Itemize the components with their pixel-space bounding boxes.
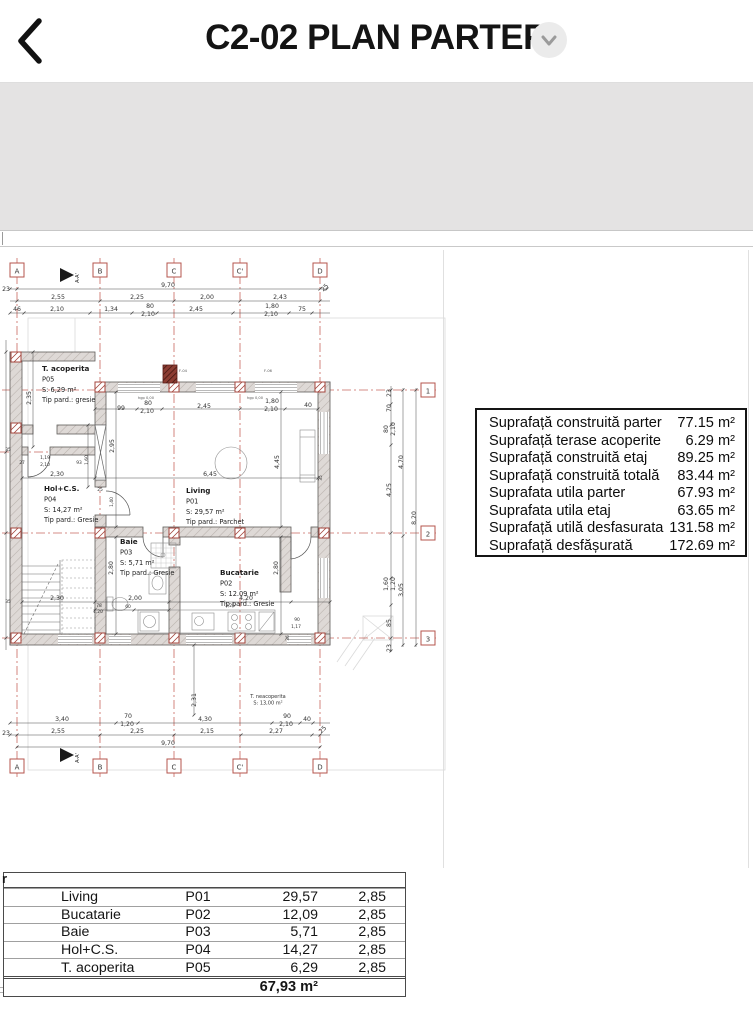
dim-label: 2,30	[50, 471, 64, 478]
room-name: Baie	[120, 537, 138, 546]
dim-label: 2,10	[279, 721, 293, 728]
dim-label: 3,40	[55, 716, 69, 723]
dim-label: hgp 0,00	[247, 396, 264, 400]
room-name: T. neacoperita	[249, 694, 285, 700]
dim-label: 4,45	[274, 455, 281, 469]
room-code-cell: P03	[154, 924, 242, 940]
room-area-cell: 14,27	[242, 942, 324, 958]
room-area-cell: 29,57	[242, 889, 324, 905]
room-area-cell: 12,09	[242, 907, 324, 923]
room-code-cell: P05	[154, 960, 242, 976]
room-name-cell: Baie	[4, 924, 154, 940]
room-area-cell: 6,29	[242, 960, 324, 976]
dim-label: 2,80	[273, 561, 280, 575]
room-height-cell: 2,85	[324, 960, 402, 976]
room-floor: Tip pard.: Gresie	[219, 600, 274, 608]
dim-label: 2,25	[130, 728, 144, 735]
dim-label: 80	[383, 425, 390, 433]
dim-label: 2,10	[40, 462, 50, 468]
dim-label: 2,45	[189, 306, 203, 313]
dim-label: 23	[2, 286, 10, 293]
dim-label: 78	[96, 603, 102, 609]
room-area: S: 12.09 m²	[220, 590, 259, 598]
room-name-cell: Living	[4, 889, 154, 905]
dim-label: 1,20	[120, 721, 134, 728]
dim-label: 23	[386, 389, 393, 397]
chevron-down-icon	[537, 28, 561, 52]
sheet-top-edge	[0, 231, 753, 247]
dim-label: 1,20	[390, 577, 397, 591]
dim-label: 2,30	[50, 595, 64, 602]
area-value: 83.44 m²	[677, 468, 735, 486]
dim-label: 90	[294, 617, 300, 623]
area-label: Suprafață utilă desfasurata	[489, 520, 663, 538]
title-dropdown-button[interactable]	[531, 22, 567, 58]
area-label: Suprafata utila parter	[489, 485, 625, 503]
area-value: 63.65 m²	[677, 503, 735, 521]
area-row: Suprafață construită parter77.15 m²	[489, 415, 735, 433]
area-label: Suprafață desfășurată	[489, 538, 633, 556]
room-name: Hol+C.S.	[44, 484, 79, 493]
dim-label: 85	[386, 619, 393, 627]
grid-label: 1	[426, 388, 430, 396]
room-name-cell: T. acoperita	[4, 960, 154, 976]
grid-label: D	[317, 764, 322, 772]
room-floor: Tip pard.: Gresie	[43, 516, 98, 524]
area-row: Suprafață terase acoperite6.29 m²	[489, 433, 735, 451]
room-table-header: r	[4, 873, 405, 888]
dim-label: 4,30	[198, 716, 212, 723]
dim-label: 1,40	[109, 497, 115, 507]
dim-label: 80	[144, 400, 152, 407]
dim-label: 35	[5, 599, 11, 605]
area-row: Suprafață desfășurată172.69 m²	[489, 538, 735, 556]
table-row: Bucatarie P02 12,09 2,85	[4, 906, 405, 924]
dim-label: 2,55	[51, 294, 65, 301]
dim-label: 1,80	[265, 398, 279, 405]
room-floor: Tip pard.: gresie	[41, 396, 96, 404]
dim-label: 35	[5, 447, 11, 453]
area-row: Suprafata utila etaj63.65 m²	[489, 503, 735, 521]
area-row: Suprafață construită etaj89.25 m²	[489, 450, 735, 468]
grid-label: 2	[426, 531, 430, 539]
area-row: Suprafață construită totală83.44 m²	[489, 468, 735, 486]
dim-label: 1,17	[291, 624, 301, 630]
dim-label: 25	[318, 725, 329, 736]
room-code-cell: P04	[154, 942, 242, 958]
dim-label: 3,05	[398, 583, 405, 597]
dim-label: 40	[303, 716, 311, 723]
table-row: T. acoperita P05 6,29 2,85	[4, 958, 405, 976]
dim-label: 35	[318, 475, 324, 481]
dim-label: 4,70	[398, 455, 405, 469]
dim-label: 46	[13, 306, 21, 313]
area-value: 67.93 m²	[677, 485, 735, 503]
grid-label: C'	[237, 268, 244, 276]
dim-label: 1,80	[265, 303, 279, 310]
sheet-edge-tick	[2, 232, 3, 245]
dim-label: 36	[285, 635, 291, 641]
dim-label: 1,20	[93, 609, 103, 615]
room-name: Bucatarie	[220, 568, 259, 577]
dim-label: 2,25	[130, 294, 144, 301]
section-label: A-A'	[75, 273, 81, 283]
dim-label: 70	[386, 404, 393, 412]
room-code: P03	[120, 549, 132, 557]
grid-label: C'	[237, 764, 244, 772]
total-area-value: 67,93 m²	[242, 979, 324, 995]
dimension-labels-inner: 99 80 2,10 2,45 1,80 2,10 40 hgp 0,00 hg…	[5, 369, 324, 641]
dim-label: 2,10	[141, 311, 155, 318]
area-value: 172.69 m²	[669, 538, 735, 556]
page-title: C2-02 PLAN PARTER	[0, 18, 753, 58]
dim-label: hgp 0,00	[138, 396, 155, 400]
area-value: 89.25 m²	[677, 450, 735, 468]
dim-label: 80	[146, 303, 154, 310]
area-row: Suprafață utilă desfasurata131.58 m²	[489, 520, 735, 538]
area-value: 6.29 m²	[686, 433, 735, 451]
dim-label: 25	[320, 283, 331, 294]
dim-label: 40	[304, 402, 312, 409]
room-floor: Tip pard.: Gresie	[119, 569, 174, 577]
dim-label: 25	[97, 487, 103, 493]
dim-label: 2,00	[200, 294, 214, 301]
app-header: C2-02 PLAN PARTER	[0, 0, 753, 83]
room-code-cell: P02	[154, 907, 242, 923]
section-label: A-A'	[75, 753, 81, 763]
collapsed-top-panel	[0, 83, 753, 231]
room-name: Living	[186, 486, 210, 495]
dimension-labels-top: 23 9,70 25 2,55 2,25 2,00 2,43 46 2,10 1…	[2, 282, 330, 318]
room-code: P02	[220, 580, 232, 588]
dim-label: 8,20	[411, 511, 418, 525]
grid-label: B	[98, 764, 103, 772]
room-floor: Tip pard.: Parchet	[185, 518, 245, 526]
room-area-cell: 5,71	[242, 924, 324, 940]
dim-label: 2,10	[264, 311, 278, 318]
grid-label: C	[172, 268, 177, 276]
room-name-cell: Bucatarie	[4, 907, 154, 923]
window-tag: F-04	[179, 369, 188, 373]
dim-label: 27	[19, 460, 25, 466]
room-code: P01	[186, 498, 198, 506]
dim-label: 23	[386, 644, 393, 652]
area-summary-table: Suprafață construită parter77.15 m² Supr…	[475, 408, 747, 557]
header-fragment: r	[2, 871, 7, 886]
table-row: Living P01 29,57 2,85	[4, 888, 405, 906]
dim-label: 6,45	[203, 471, 217, 478]
area-label: Suprafață construită parter	[489, 415, 662, 433]
area-value: 77.15 m²	[677, 415, 735, 433]
dim-label: 99	[117, 405, 125, 412]
dim-label: 2,15	[200, 728, 214, 735]
table-row: Hol+C.S. P04 14,27 2,85	[4, 941, 405, 959]
room-name-cell: Hol+C.S.	[4, 942, 154, 958]
dim-label: 9,70	[161, 282, 175, 289]
dim-label: 70	[124, 713, 132, 720]
grid-label: B	[98, 268, 103, 276]
dim-label: 75	[298, 306, 306, 313]
area-value: 131.58 m²	[669, 520, 735, 538]
grid-label: D	[317, 268, 322, 276]
dim-label: 2,27	[269, 728, 283, 735]
dim-label: 2,45	[197, 403, 211, 410]
table-total-row: 67,93 m²	[4, 976, 405, 996]
room-area: S: 14,27 m²	[44, 506, 83, 514]
dim-label: 2,95	[109, 439, 116, 453]
room-area: S: 29,57 m²	[186, 508, 225, 516]
area-label: Suprafață terase acoperite	[489, 433, 661, 451]
room-code-cell: P01	[154, 889, 242, 905]
dim-label: 23	[2, 730, 10, 737]
dim-label: 93	[76, 460, 82, 466]
dim-label: 90	[283, 713, 291, 720]
dim-label: 60	[125, 604, 131, 610]
room-height-cell: 2,85	[324, 889, 402, 905]
room-height-cell: 2,85	[324, 924, 402, 940]
area-row: Suprafata utila parter67.93 m²	[489, 485, 735, 503]
room-code: P04	[44, 496, 56, 504]
room-height-cell: 2,85	[324, 907, 402, 923]
sheet-edges	[444, 250, 749, 868]
room-area: S: 5,71 m²	[120, 559, 155, 567]
dim-label: 2,80	[108, 561, 115, 575]
room-name: T. acoperita	[42, 364, 90, 373]
grid-label: 3	[426, 636, 430, 644]
room-code: P05	[42, 376, 54, 384]
room-height-cell: 2,85	[324, 942, 402, 958]
dim-label: 4,25	[386, 483, 393, 497]
dim-label: 2,35	[26, 391, 33, 405]
dim-label: 2,10	[390, 422, 397, 436]
area-label: Suprafata utila etaj	[489, 503, 611, 521]
dim-label: 2,10	[264, 406, 278, 413]
dim-label: 2,00	[128, 595, 142, 602]
dim-label: 2,55	[51, 728, 65, 735]
room-list-table: r Living P01 29,57 2,85 Bucatarie P02 12…	[3, 872, 406, 997]
dim-label: 1,60	[383, 577, 390, 591]
dimension-labels-right: 23 70 80 2,10 4,25 1,60 1,20 85 23 4,70 …	[383, 389, 418, 652]
window-tag: F-06	[264, 369, 273, 373]
area-label: Suprafață construită totală	[489, 468, 659, 486]
dim-label: 2,43	[273, 294, 287, 301]
grid-label: A	[15, 764, 20, 772]
grid-label: A	[15, 268, 20, 276]
dim-label: 1,19	[40, 455, 50, 461]
room-area: S: 6,29 m²	[42, 386, 77, 394]
table-row: Baie P03 5,71 2,85	[4, 923, 405, 941]
dim-label: 2,31	[191, 693, 198, 707]
dim-label: 9,70	[161, 740, 175, 747]
grid-label: C	[172, 764, 177, 772]
dim-label: 1,34	[104, 306, 118, 313]
room-area: S: 13,00 m²	[253, 701, 282, 707]
dim-label: 2,10	[50, 306, 64, 313]
dim-label: 1,60	[84, 455, 90, 465]
chimney	[163, 365, 177, 383]
dim-label: 2,10	[140, 408, 154, 415]
area-label: Suprafață construită etaj	[489, 450, 647, 468]
shaft	[95, 425, 106, 480]
